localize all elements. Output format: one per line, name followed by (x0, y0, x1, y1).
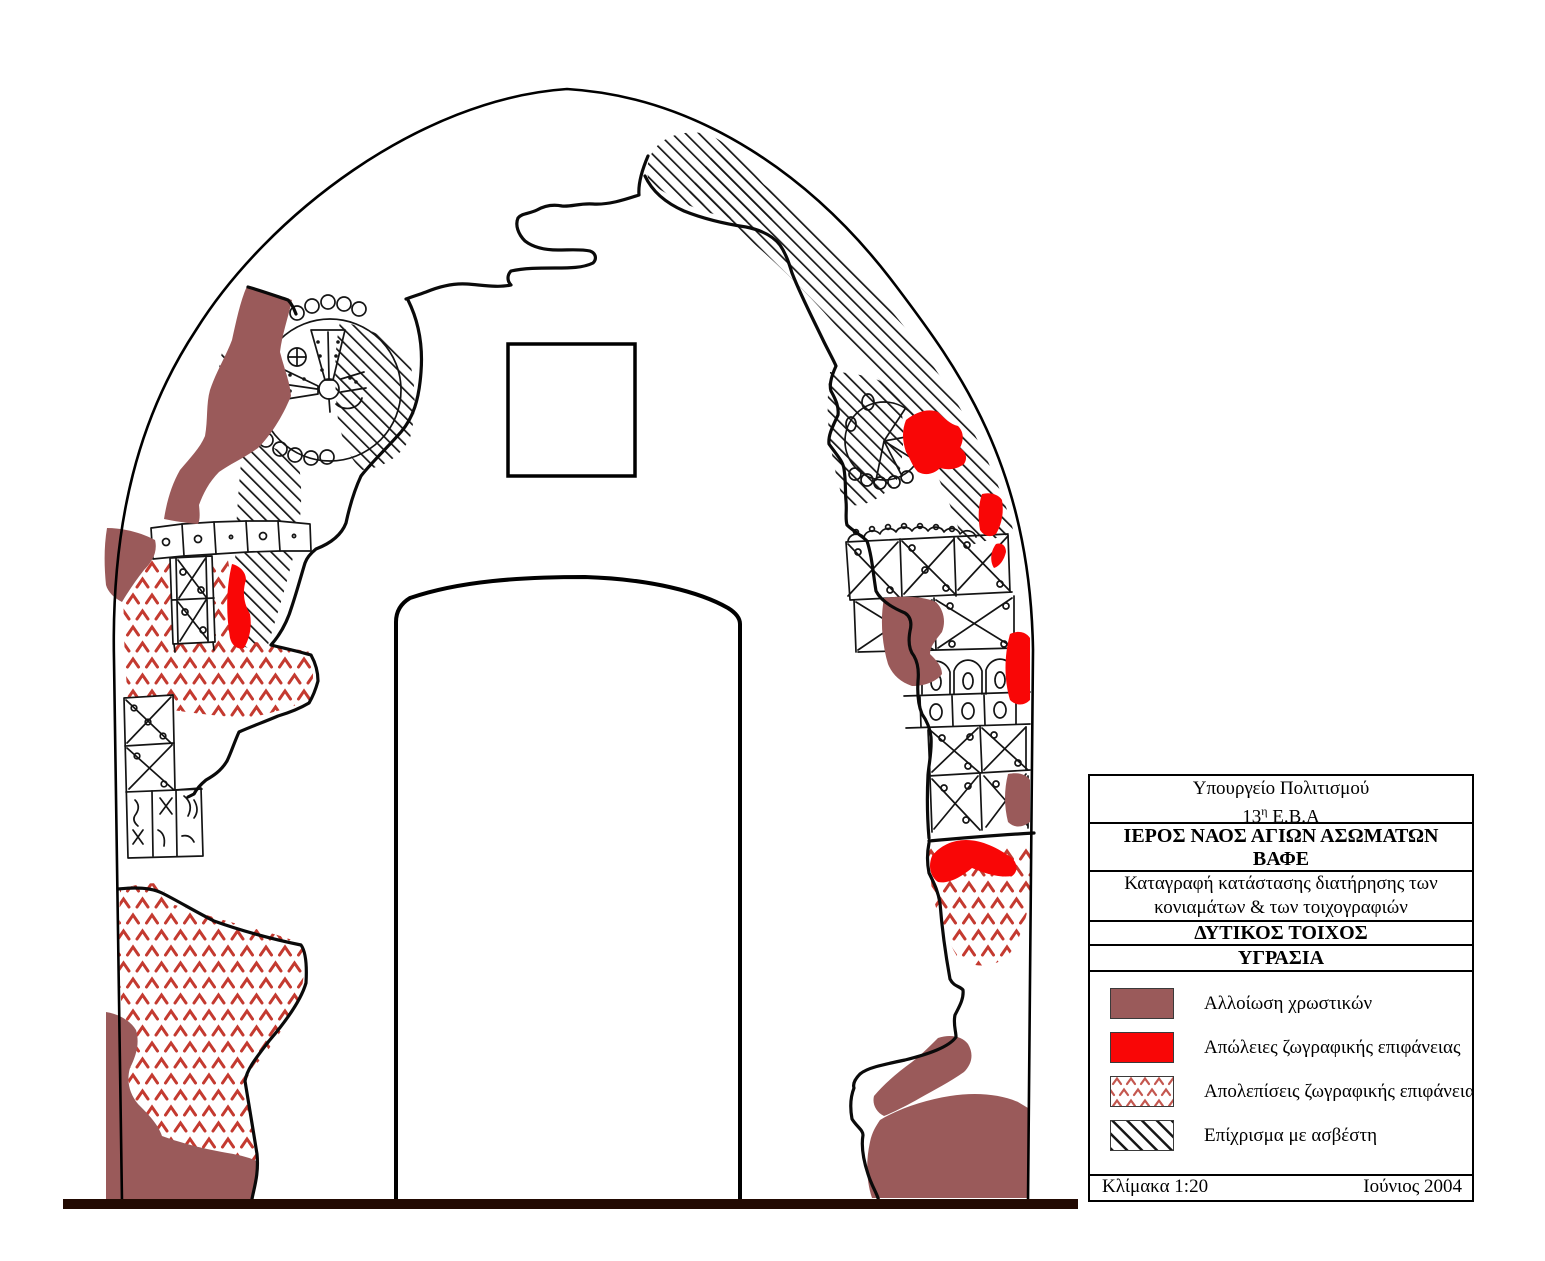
fresco-panel-left (124, 695, 203, 858)
conservation-drawing-sheet: Υπουργείο Πολιτισμού 13η Ε.Β.Α ΙΕΡΟΣ ΝΑΟ… (0, 0, 1545, 1261)
flaking-chevron-swatch (1110, 1076, 1174, 1107)
title-subject-line1: Καταγραφή κατάστασης διατήρησης των (1090, 872, 1472, 896)
title-subject-row: Καταγραφή κατάστασης διατήρησης των κονι… (1090, 872, 1472, 922)
legend-item-paint-loss: Απώλειες ζωγραφικής επιφάνειας (1110, 1032, 1472, 1063)
brown-patch (882, 597, 944, 686)
fresco-column-left (170, 556, 215, 652)
legend-item-lime-plaster: Επίχρισμα με ασβέστη (1110, 1120, 1472, 1151)
legend-item-pigment-alteration: Αλλοίωση χρωστικών (1110, 988, 1472, 1019)
title-wall: ΔΥΤΙΚΟΣ ΤΟΙΧΟΣ (1090, 922, 1472, 946)
legend-panel: Υπουργείο Πολιτισμού 13η Ε.Β.Α ΙΕΡΟΣ ΝΑΟ… (1088, 774, 1474, 1202)
red-patch (1006, 632, 1031, 705)
brown-patch (1005, 773, 1030, 826)
title-ephorate: 13η Ε.Β.Α (1090, 800, 1472, 824)
boundary-line (406, 156, 648, 299)
window-opening (508, 344, 635, 476)
title-condition: ΥΓΡΑΣΙΑ (1090, 946, 1472, 972)
ground-line (63, 1199, 1078, 1209)
lime-plaster-hatch-swatch (1110, 1120, 1174, 1151)
paint-loss-swatch (1110, 1032, 1174, 1063)
red-patch (991, 543, 1006, 568)
legend-item-label: Απολεπίσεις ζωγραφικής επιφάνειας (1204, 1081, 1472, 1103)
date-label: Ιούνιος 2004 (1363, 1176, 1462, 1200)
legend-item-label: Αλλοίωση χρωστικών (1204, 993, 1372, 1015)
door-opening (396, 577, 740, 1202)
legend-item-label: Επίχρισμα με ασβέστη (1204, 1125, 1377, 1147)
scale-date-row: Κλίμακα 1:20 Ιούνιος 2004 (1090, 1176, 1472, 1200)
title-ministry: Υπουργείο Πολιτισμού (1090, 777, 1472, 800)
title-church-name: ΙΕΡΟΣ ΝΑΟΣ ΑΓΙΩΝ ΑΣΩΜΑΤΩΝ (1090, 825, 1472, 848)
title-church-row: ΙΕΡΟΣ ΝΑΟΣ ΑΓΙΩΝ ΑΣΩΜΑΤΩΝ ΒΑΦΕ (1090, 824, 1472, 872)
pigment-alteration-swatch (1110, 988, 1174, 1019)
legend-items: Αλλοίωση χρωστικών Απώλειες ζωγραφικής ε… (1090, 972, 1472, 1176)
title-village: ΒΑΦΕ (1090, 848, 1472, 871)
title-block-header: Υπουργείο Πολιτισμού 13η Ε.Β.Α (1090, 776, 1472, 824)
legend-item-flaking: Απολεπίσεις ζωγραφικής επιφάνειας (1110, 1076, 1472, 1107)
scale-label: Κλίμακα 1:20 (1102, 1176, 1208, 1200)
title-subject-line2: κονιαμάτων & των τοιχογραφιών (1090, 896, 1472, 920)
hatch-patch (335, 322, 414, 470)
legend-item-label: Απώλειες ζωγραφικής επιφάνειας (1204, 1037, 1461, 1059)
